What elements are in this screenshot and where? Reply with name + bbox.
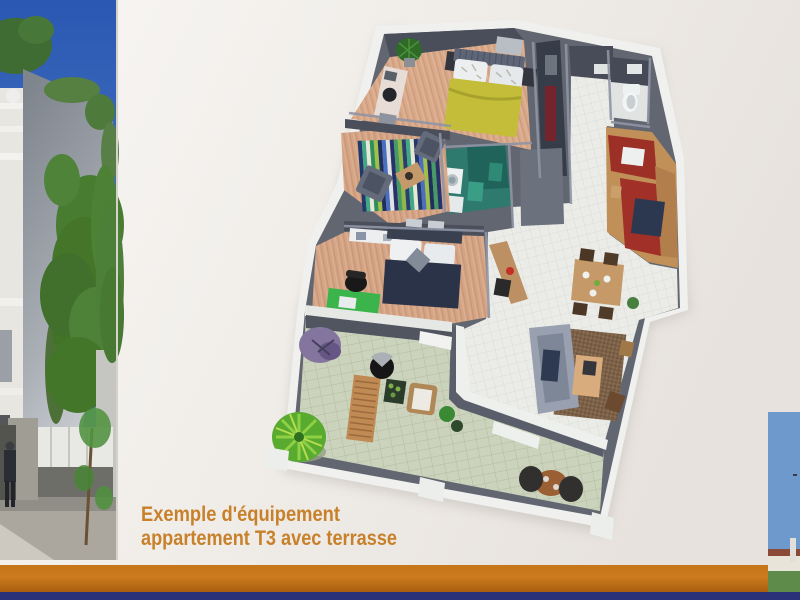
svg-text:Exemple d'équipement: Exemple d'équipement <box>141 503 340 526</box>
svg-text:appartement T3 avec terrasse: appartement T3 avec terrasse <box>141 527 397 550</box>
